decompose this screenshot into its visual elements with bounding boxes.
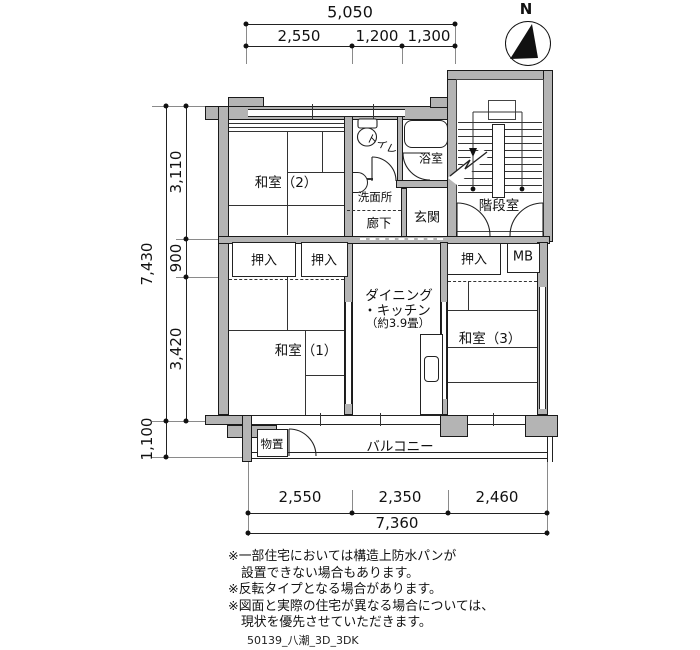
dim-top-seg2: 1,200	[356, 27, 399, 45]
room-label-stairwell: 階段室	[479, 194, 520, 214]
wall-bottom-pier	[440, 415, 468, 437]
note-line: 設置できない場合もあります。	[228, 566, 494, 583]
tatami-line	[305, 375, 344, 376]
stair-rail	[492, 124, 505, 198]
wall-stair-east	[543, 70, 553, 242]
wall-bottom-pier	[525, 415, 558, 437]
room-label-storage: 物置	[261, 436, 284, 452]
dim-left-balcony: 1,100	[138, 418, 156, 461]
window-band-line	[229, 127, 344, 128]
dim-top-total: 5,050	[327, 3, 373, 22]
tatami-line	[322, 132, 323, 172]
dim-dot	[244, 44, 249, 49]
dim-dot	[400, 44, 405, 49]
stair-landing-line	[488, 100, 516, 120]
room-label-closet-b: 押入	[311, 250, 337, 269]
dim-dot	[184, 419, 189, 424]
dim-dot	[244, 22, 249, 27]
dim-left-seg3: 3,420	[167, 328, 185, 371]
window-south-2	[468, 415, 525, 425]
tatami-line	[448, 347, 537, 348]
witness-line	[547, 462, 548, 536]
window-tick	[373, 104, 374, 120]
wall-hall-entrance	[401, 188, 407, 242]
note-line: ※一部住宅においては構造上防水パンが	[228, 549, 494, 566]
room-label-entrance: 玄関	[414, 207, 440, 226]
dim-line	[248, 533, 547, 534]
dim-left-total: 7,430	[138, 243, 156, 286]
compass-n-label: N	[520, 0, 533, 18]
room-label-washitsu1: 和室（1）	[275, 339, 338, 359]
dim-top-seg1: 2,550	[278, 27, 321, 45]
dim-bottom-total: 7,360	[376, 514, 419, 532]
toilet-tank-icon	[358, 119, 377, 128]
room-label-washitsu3: 和室（3）	[459, 327, 522, 347]
dim-bottom-seg3: 2,460	[476, 488, 519, 506]
dim-dot	[164, 455, 169, 460]
closet-front-dashed	[448, 281, 537, 282]
dim-dot	[164, 419, 169, 424]
dim-left-seg2: 900	[167, 244, 185, 273]
wall-pilaster	[228, 97, 264, 107]
dim-dot	[545, 531, 550, 536]
dim-dot	[184, 104, 189, 109]
dim-top-seg3: 1,300	[408, 27, 451, 45]
drawing-id: 50139_八潮_3D_3DK	[247, 632, 359, 648]
window-band-line	[229, 123, 344, 124]
dim-line	[246, 24, 455, 25]
compass-icon	[505, 21, 551, 66]
washroom-boundary-dashed	[347, 210, 401, 211]
room-label-hallway: 廊下	[366, 213, 391, 232]
note-line: ※反転タイプとなる場合があります。	[228, 582, 494, 599]
witness-line	[352, 46, 353, 64]
window-tick	[320, 413, 321, 426]
dim-line	[186, 106, 187, 421]
wall-left	[218, 106, 229, 415]
dim-dot	[350, 511, 355, 516]
note-line: 現状を優先させていただきます。	[228, 615, 494, 632]
notes-block: ※一部住宅においては構造上防水パンが 設置できない場合もあります。 ※反転タイプ…	[228, 549, 494, 632]
closet-front-dashed	[229, 279, 344, 280]
kitchen-sink	[424, 356, 439, 382]
witness-line	[402, 46, 403, 64]
dim-dot	[446, 511, 451, 516]
room-label-closet-c: 押入	[461, 249, 487, 268]
room-label-bath: 浴室	[419, 150, 443, 167]
dim-dot	[246, 531, 251, 536]
dim-dot	[453, 22, 458, 27]
drain-pipe	[547, 437, 553, 462]
witness-line	[176, 277, 218, 278]
room-label-washitsu2: 和室（2）	[255, 171, 318, 191]
dim-dot	[246, 511, 251, 516]
witness-line	[176, 239, 218, 240]
note-line: ※図面と実際の住宅が異なる場合については、	[228, 599, 494, 616]
witness-line	[248, 462, 249, 536]
dim-dot	[350, 44, 355, 49]
sliding-door-west	[345, 302, 352, 404]
entrance-threshold-dashed	[360, 238, 443, 240]
room-label-washroom: 洗面所	[358, 189, 393, 205]
window-tick	[493, 413, 494, 426]
tatami-line	[287, 132, 288, 205]
tatami-line	[448, 310, 537, 311]
dim-dot	[164, 104, 169, 109]
dim-dot	[184, 237, 189, 242]
door-arc	[372, 157, 396, 181]
window-south-1	[252, 415, 440, 425]
wall-balcony-left	[242, 415, 252, 462]
window-east	[539, 287, 546, 409]
room-label-toilet: トイレ	[364, 130, 401, 159]
dim-dot	[453, 44, 458, 49]
room-label-meter-box: MB	[513, 250, 533, 265]
tatami-line	[468, 281, 469, 310]
tatami-line	[448, 382, 537, 383]
dim-bottom-seg2: 2,350	[379, 488, 422, 506]
dim-dot	[184, 275, 189, 280]
floor-plan-page: N 5,050 2,550 1,200 1,300 7,430 3,110 90…	[0, 0, 700, 650]
tatami-line	[229, 330, 344, 331]
window-top	[248, 109, 405, 117]
tatami-line	[287, 205, 288, 235]
room-label-closet-a: 押入	[251, 250, 277, 269]
bathtub	[404, 120, 448, 148]
window-tick	[312, 104, 313, 120]
room-label-balcony: バルコニー	[366, 435, 433, 455]
window-tick	[380, 413, 381, 426]
room-label-dk-3: （約3.9畳）	[366, 315, 430, 331]
dim-bottom-seg1: 2,550	[279, 488, 322, 506]
dim-left-seg1: 3,110	[167, 151, 185, 194]
dim-dot	[545, 511, 550, 516]
